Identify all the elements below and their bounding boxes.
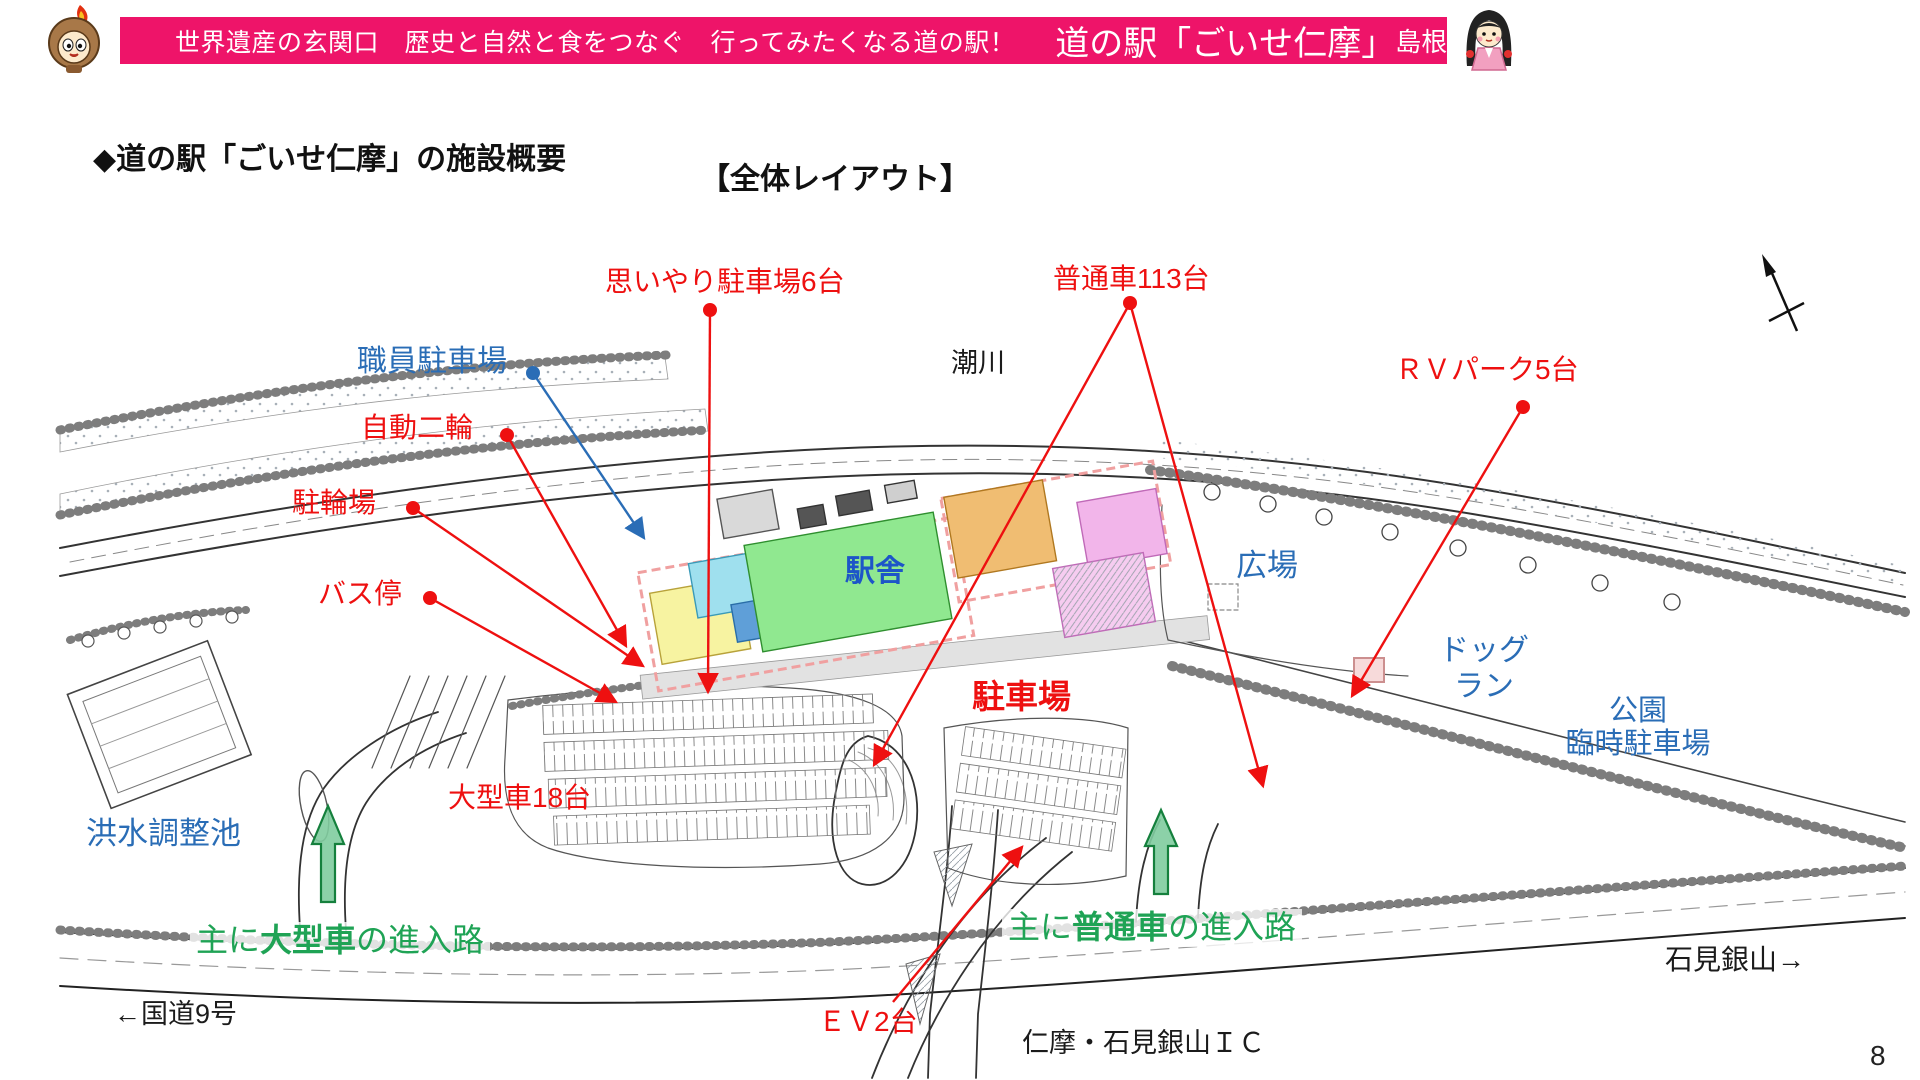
label-park-temp-parking: 公園 臨時駐車場: [1528, 695, 1748, 762]
header-station-name: 道の駅「ごいせ仁摩」: [1055, 16, 1395, 65]
label-route9: ←国道9号: [114, 999, 237, 1029]
mascot-left-icon: [36, 3, 112, 73]
label-dog-run-line1: ドッグ: [1427, 633, 1541, 669]
label-river: 潮川: [948, 348, 1008, 378]
entry-normal-strong: 普通車: [1072, 909, 1168, 945]
label-large-vehicles: 大型車18台: [448, 782, 591, 813]
label-dog-run: ドッグ ラン: [1427, 633, 1541, 705]
label-park-line1: 公園: [1528, 695, 1748, 728]
label-rv-park: ＲＶパーク5台: [1395, 354, 1579, 385]
label-bus-stop: バス停: [318, 578, 402, 609]
label-standard-cars: 普通車113台: [1053, 263, 1210, 294]
layout-subtitle: 【全体レイアウト】: [700, 154, 970, 198]
label-flood-pond: 洪水調整池: [86, 817, 241, 852]
label-interchange: 仁摩・石見銀山ＩＣ: [1022, 1028, 1265, 1058]
label-ev-charging: ＥＶ2台: [818, 1006, 918, 1037]
label-parking-area: 駐車場: [972, 679, 1071, 716]
label-omoiyari-parking: 思いやり駐車場6台: [605, 266, 845, 297]
entry-large-suffix: の進入路: [356, 922, 484, 958]
page-title: ◆道の駅「ごいせ仁摩」の施設概要: [93, 134, 566, 178]
entry-normal-suffix: の進入路: [1168, 909, 1296, 945]
label-plaza: 広場: [1236, 549, 1298, 584]
label-bicycle-parking: 駐輪場: [292, 487, 376, 518]
north-arrow-icon: [1762, 254, 1804, 331]
label-park-line2: 臨時駐車場: [1528, 728, 1748, 761]
label-station-building: 駅舎: [845, 555, 905, 589]
entry-large-strong: 大型車: [260, 922, 356, 958]
header-tagline: 世界遺産の玄関口 歴史と自然と食をつなぐ 行ってみたくなる道の駅！: [175, 23, 1015, 59]
large-vehicle-entrance-arrow-icon: [312, 806, 344, 902]
page-number: 8: [1870, 1040, 1886, 1072]
label-staff-parking: 職員駐車場: [357, 345, 507, 379]
header-bar: 世界遺産の玄関口 歴史と自然と食をつなぐ 行ってみたくなる道の駅！ 道の駅「ごい…: [120, 17, 1447, 64]
label-entry-large-vehicles: 主に大型車の進入路: [190, 922, 490, 960]
entry-normal-prefix: 主に: [1008, 909, 1072, 945]
entry-large-prefix: 主に: [196, 922, 260, 958]
label-motorcycle: 自動二輪: [361, 412, 473, 443]
slide: 世界遺産の玄関口 歴史と自然と食をつなぐ 行ってみたくなる道の駅！ 道の駅「ごい…: [0, 0, 1920, 1080]
label-iwami-ginzan: 石見銀山→: [1662, 944, 1808, 975]
normal-vehicle-entrance-arrow-icon: [1145, 810, 1177, 894]
label-dog-run-line2: ラン: [1427, 669, 1541, 705]
mascot-right-icon: [1456, 8, 1522, 72]
label-entry-normal-vehicles: 主に普通車の進入路: [1002, 909, 1302, 947]
